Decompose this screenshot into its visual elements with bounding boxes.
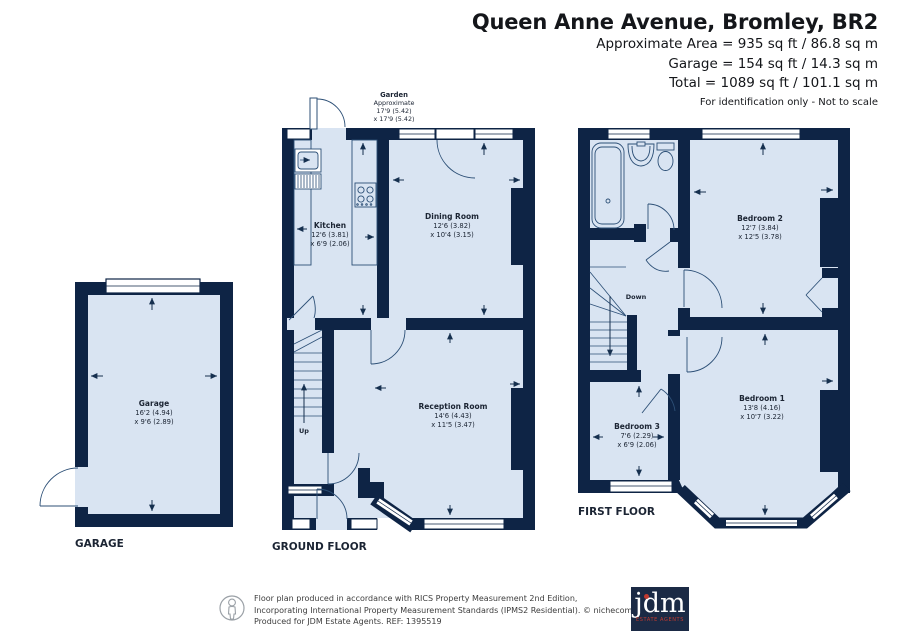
ground-floor-plan: Garden Approximate 17'9 (5.42) x 17'9 (5… (272, 91, 535, 553)
reception-label: Reception Room (419, 402, 488, 411)
reception-dim1: 14'6 (4.43) (434, 412, 472, 420)
toilet-tank (657, 143, 674, 150)
bedroom1-label: Bedroom 1 (739, 394, 785, 403)
kitchen-hob (355, 183, 376, 207)
garage-floor-label: GARAGE (75, 538, 124, 550)
footer-text: Floor plan produced in accordance with R… (254, 591, 658, 628)
garage-room-label: Garage (139, 399, 169, 408)
kitchen-dim1: 12'6 (3.81) (311, 231, 349, 239)
footer-line1: Floor plan produced in accordance with R… (254, 593, 658, 605)
kitchen-dim2: x 6'9 (2.06) (310, 240, 350, 248)
bedroom3-dim1: 7'6 (2.29) (620, 432, 653, 440)
stairs-down-label: Down (626, 293, 647, 301)
jdm-logo-dot (644, 594, 649, 599)
header: Queen Anne Avenue, Bromley, BR2 Approxim… (472, 10, 878, 108)
identification-note: For identification only - Not to scale (472, 97, 878, 108)
garage-door-opening (75, 467, 88, 507)
first-floor-plan: Bedroom 2 12'7 (3.84) x 12'5 (3.78) Bedr… (578, 128, 850, 523)
garage-area-line: Garage = 154 sq ft / 14.3 sq m (472, 56, 878, 74)
garage-room-dim1: 16'2 (4.94) (135, 409, 173, 417)
page-title: Queen Anne Avenue, Bromley, BR2 (472, 10, 878, 34)
kitchen-appliance (295, 174, 321, 189)
garage-plan: Garage 16'2 (4.94) x 9'6 (2.89) GARAGE (40, 279, 233, 550)
kitchen-label: Kitchen (314, 221, 346, 230)
garden-line3: x 17'9 (5.42) (373, 115, 414, 123)
bedroom2-dim2: x 12'5 (3.78) (738, 233, 782, 241)
person-icon (217, 591, 247, 625)
kitchen-sink (295, 149, 321, 172)
footer-line2: Incorporating International Property Mea… (254, 605, 658, 617)
footer: Floor plan produced in accordance with R… (217, 591, 658, 628)
ground-floor-label: GROUND FLOOR (272, 541, 367, 553)
bedroom2-label: Bedroom 2 (737, 214, 783, 223)
garage-room-dim2: x 9'6 (2.89) (134, 418, 174, 426)
garden-line1: Approximate (374, 99, 415, 107)
garden-line2: 17'9 (5.42) (376, 107, 411, 115)
bedroom3-label: Bedroom 3 (614, 422, 660, 431)
reception-dim2: x 11'5 (3.47) (431, 421, 475, 429)
bath-tub (592, 143, 624, 228)
bedroom3-dim2: x 6'9 (2.06) (617, 441, 657, 449)
bedroom1-dim1: 13'8 (4.16) (743, 404, 781, 412)
garden-label: Garden (380, 91, 408, 99)
garage-door-arc (40, 468, 78, 506)
dining-dim2: x 10'4 (3.15) (430, 231, 474, 239)
jdm-logo-text: jdm (631, 589, 689, 619)
approx-area-line: Approximate Area = 935 sq ft / 86.8 sq m (472, 36, 878, 54)
toilet-bowl (658, 152, 673, 171)
first-floor-label: FIRST FLOOR (578, 506, 655, 518)
bedroom1-dim2: x 10'7 (3.22) (740, 413, 784, 421)
dining-dim1: 12'6 (3.82) (433, 222, 471, 230)
jdm-logo: jdm ESTATE AGENTS (631, 587, 689, 631)
bedroom2-dim1: 12'7 (3.84) (741, 224, 779, 232)
stairs-up-label: Up (299, 427, 309, 435)
footer-line3: Produced for JDM Estate Agents. REF: 139… (254, 616, 658, 628)
total-area-line: Total = 1089 sq ft / 101.1 sq m (472, 75, 878, 93)
jdm-logo-subtext: ESTATE AGENTS (631, 617, 689, 623)
dining-label: Dining Room (425, 212, 479, 221)
